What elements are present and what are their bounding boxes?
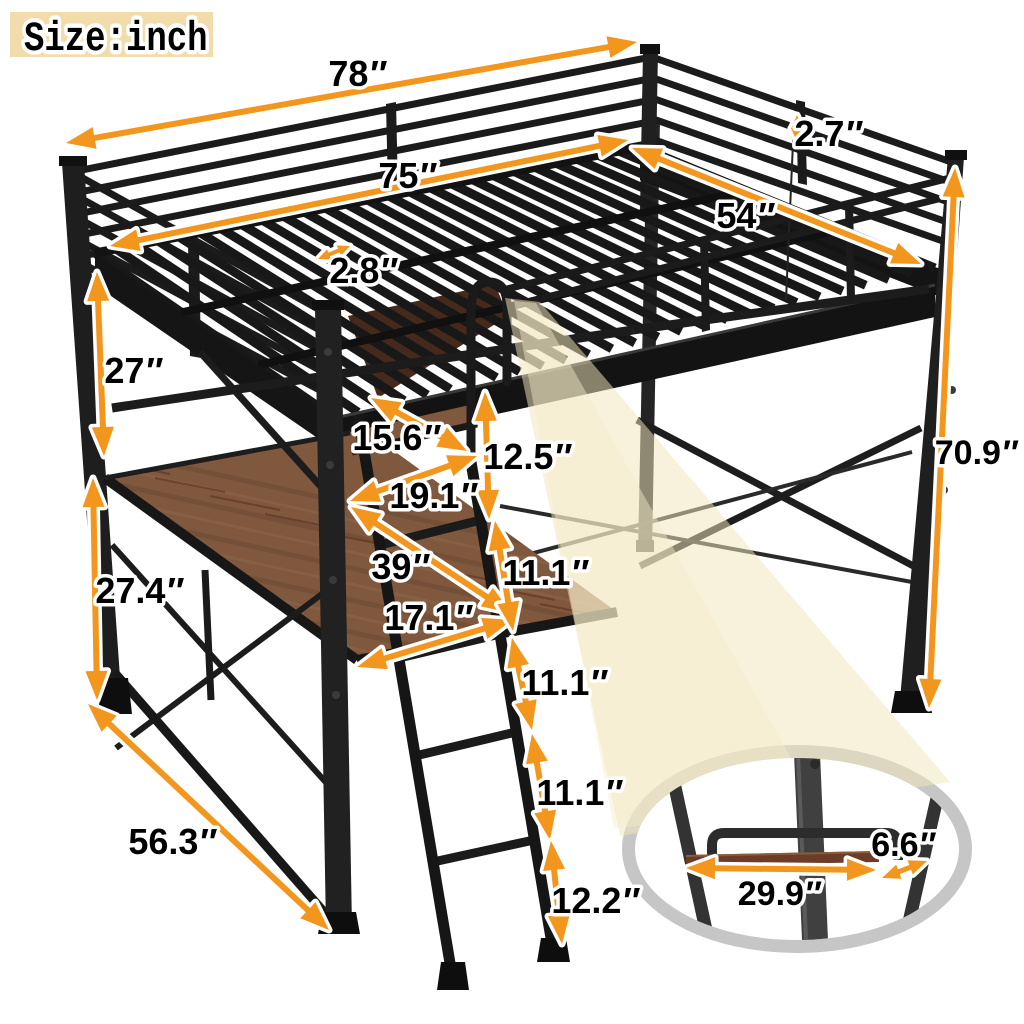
svg-text:27.4″: 27.4″ (95, 570, 184, 611)
svg-text:75″: 75″ (378, 155, 437, 196)
svg-text:54″: 54″ (716, 195, 775, 236)
svg-text:11.1″: 11.1″ (536, 772, 623, 813)
svg-text:11.1″: 11.1″ (521, 662, 608, 703)
svg-text:27″: 27″ (104, 350, 163, 391)
svg-text:12.5″: 12.5″ (483, 436, 572, 477)
svg-text:19.1″: 19.1″ (389, 475, 478, 516)
svg-text:15.6″: 15.6″ (352, 417, 441, 458)
svg-text:29.9″: 29.9″ (738, 875, 822, 913)
svg-text:78″: 78″ (328, 53, 387, 94)
svg-text:2.8″: 2.8″ (329, 250, 398, 291)
svg-text:2.7″: 2.7″ (794, 113, 863, 154)
svg-text:11.1″: 11.1″ (502, 552, 589, 593)
svg-text:12.2″: 12.2″ (551, 880, 640, 921)
svg-text:56.3″: 56.3″ (128, 821, 217, 862)
svg-text:39″: 39″ (371, 546, 430, 587)
svg-text:6.6″: 6.6″ (871, 826, 936, 864)
svg-text:Size:inch: Size:inch (24, 16, 208, 63)
svg-text:17.1″: 17.1″ (384, 597, 473, 638)
svg-text:70.9″: 70.9″ (935, 434, 1019, 472)
